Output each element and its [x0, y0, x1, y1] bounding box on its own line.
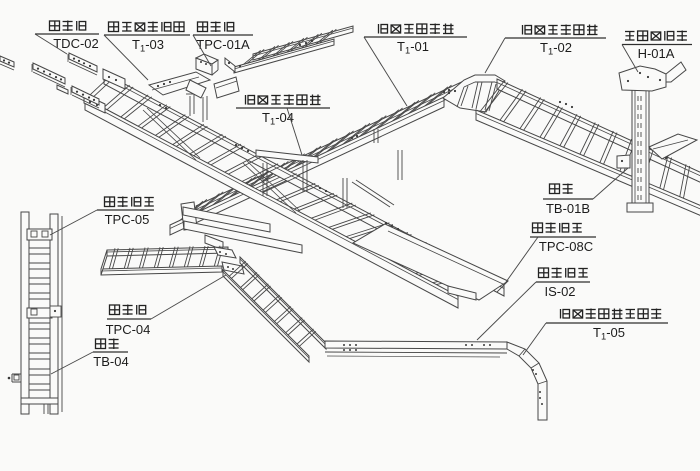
svg-text:H-01A: H-01A: [638, 46, 675, 61]
svg-text:TPC-01A: TPC-01A: [196, 37, 250, 52]
svg-text:IS-02: IS-02: [544, 284, 575, 299]
svg-text:TPC-04: TPC-04: [106, 322, 151, 337]
svg-text:TPC-08C: TPC-08C: [539, 239, 593, 254]
svg-text:T1-05: T1-05: [593, 325, 625, 342]
svg-text:TB-01B: TB-01B: [546, 201, 590, 216]
svg-text:TPC-05: TPC-05: [105, 212, 150, 227]
svg-text:T1-03: T1-03: [132, 37, 164, 54]
svg-text:TB-04: TB-04: [93, 354, 128, 369]
svg-text:T1-04: T1-04: [262, 110, 294, 127]
svg-text:TDC-02: TDC-02: [53, 36, 99, 51]
svg-text:T1-02: T1-02: [540, 40, 572, 57]
svg-text:T1-01: T1-01: [397, 39, 429, 56]
